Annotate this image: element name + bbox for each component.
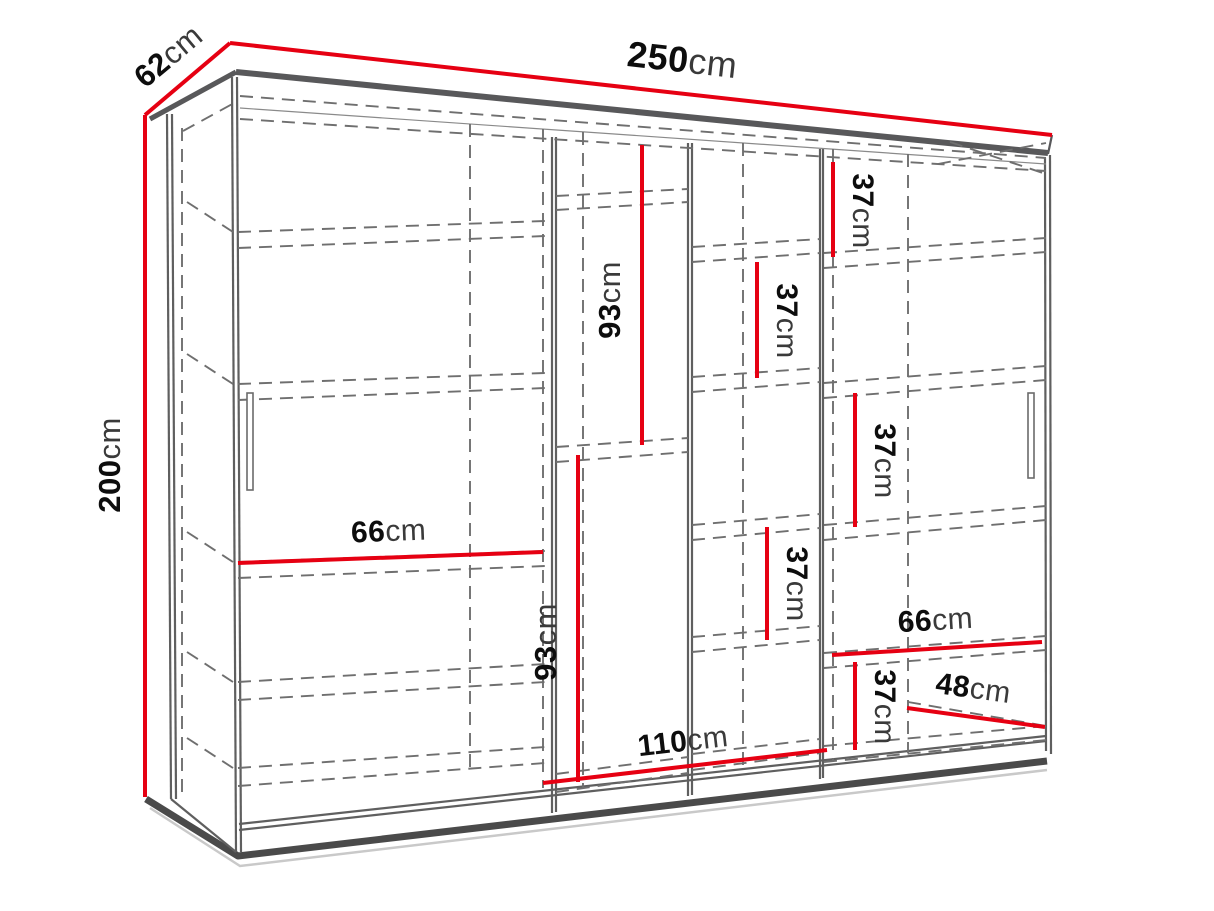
dimension-value: 250 [625,33,691,81]
hidden-edge-dashed [556,452,688,462]
dimension-unit: cm [770,318,803,359]
cabinet-edge [1050,155,1051,754]
dimension-value: 37 [868,423,901,457]
dimension-value: 37 [846,173,879,207]
dimension-unit: cm [686,40,739,86]
hidden-edge-dashed [187,532,233,562]
hidden-edge-dashed [692,626,820,637]
dimension-left-section-width: 66cm [238,514,543,563]
hidden-edge-dashed [238,236,545,248]
wardrobe-dimension-diagram: 250cm62cm200cm93cm93cm37cm37cm37cm37cm37… [0,0,1214,911]
dimension-unit: cm [780,581,813,622]
dimension-unit: cm [685,720,730,757]
hidden-edge-dashed [692,382,820,392]
dimension-hanging-height-upper: 93cm [592,145,642,445]
dimension-value: 66 [350,515,386,549]
dimension-unit: cm [528,603,563,645]
dimension-label-left-section-width: 66cm [350,514,427,550]
dimension-interior-depth: 48cm [907,667,1045,727]
hidden-edge-dashed [187,738,233,768]
hidden-edge-dashed [692,514,820,525]
hidden-edge-dashed [238,388,545,400]
top-panel-front-edge [236,72,1048,153]
cabinet-edge [172,114,176,799]
hidden-edge-dashed [556,438,688,447]
dimension-label-shelf-gap-middle-upper: 37cm [770,283,803,358]
dimension-label-middle-section-width: 110cm [636,720,730,763]
dimension-value: 200 [92,460,127,513]
dimension-line-interior-depth [907,708,1045,727]
dimension-label-overall-width: 250cm [625,33,739,86]
hidden-edge-dashed [692,528,820,540]
cabinet-edge [167,114,171,799]
dimension-label-shelf-gap-right-bottom: 37cm [868,669,901,744]
dimension-label-overall-depth: 62cm [127,18,209,95]
hidden-edge-dashed [238,763,545,786]
hidden-edge-dashed [187,354,233,384]
hidden-edge-dashed [238,373,545,384]
dimension-unit: cm [968,672,1013,710]
dimension-value: 93 [592,303,627,338]
hidden-edge-dashed [824,380,1046,398]
dimension-value: 37 [868,669,901,703]
hidden-edge-dashed [238,566,545,578]
dimension-shelf-gap-middle-upper: 37cm [757,262,803,378]
top-panel-right-cap [1048,135,1052,154]
dimension-label-overall-height: 200cm [92,417,127,513]
dimension-shelf-gap-right-bottom: 37cm [855,662,901,750]
dimension-label-shelf-gap-right-top: 37cm [846,173,879,248]
hidden-edge-dashed [824,366,1046,383]
cabinet-edge [171,799,236,852]
hidden-edge-dashed [238,664,545,682]
dimension-unit: cm [592,261,627,303]
dimension-line-left-section-width [238,552,543,563]
cabinet-edge [1045,158,1046,751]
hidden-edge-dashed [692,640,820,652]
dimension-unit: cm [868,458,901,499]
cabinet-edge [237,77,241,852]
hidden-edge-dashed [556,189,688,196]
dimension-label-hanging-height-lower: 93cm [528,603,563,681]
hidden-edge-dashed [692,253,820,262]
dimension-unit: cm [92,417,127,459]
door-handle-left [247,393,253,490]
dimension-value: 110 [636,725,689,764]
dimension-value: 37 [780,546,813,580]
dimension-label-interior-depth: 48cm [934,667,1013,710]
hidden-edge-dashed [187,652,233,682]
dimension-value: 37 [770,283,803,317]
door-handle-right [1028,393,1034,478]
hidden-edge-dashed [692,239,820,247]
dimension-label-shelf-gap-middle-lower: 37cm [780,546,813,621]
dimension-shelf-gap-right-top: 37cm [833,162,879,257]
dimension-overall-height: 200cm [92,115,145,797]
hidden-edge-dashed [238,747,545,768]
dimension-label-hanging-height-upper: 93cm [592,261,627,339]
dimension-unit: cm [385,514,427,549]
hidden-edge-dashed [238,682,545,700]
hidden-edge-dashed [183,102,236,131]
dimension-shelf-gap-middle-lower: 37cm [767,527,813,640]
dimension-shelf-gap-right-middle: 37cm [855,393,901,527]
dimension-unit: cm [931,602,974,637]
dimension-unit: cm [846,208,879,249]
hidden-edge-dashed [238,221,545,232]
hidden-edge-dashed [556,202,688,210]
dimension-right-section-width: 66cm [832,602,1042,655]
dimension-value: 48 [934,667,973,704]
diagram-canvas: 250cm62cm200cm93cm93cm37cm37cm37cm37cm37… [0,0,1214,911]
hidden-edge-dashed [824,252,1046,268]
dimension-value: 93 [528,645,563,680]
dimension-unit: cm [868,704,901,745]
wardrobe-structure [146,72,1052,866]
dimension-label-right-section-width: 66cm [897,602,974,640]
dimension-label-shelf-gap-right-middle: 37cm [868,423,901,498]
dimension-overall-depth: 62cm [127,18,230,115]
hidden-edge-dashed [187,202,233,232]
dimension-value: 66 [897,604,933,639]
cabinet-edge [232,77,236,852]
